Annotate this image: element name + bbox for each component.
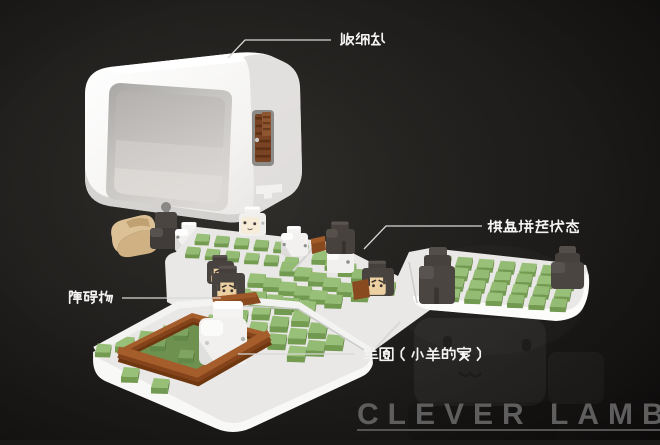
svg-text:CLEVER LAMB: CLEVER LAMB bbox=[357, 398, 660, 431]
